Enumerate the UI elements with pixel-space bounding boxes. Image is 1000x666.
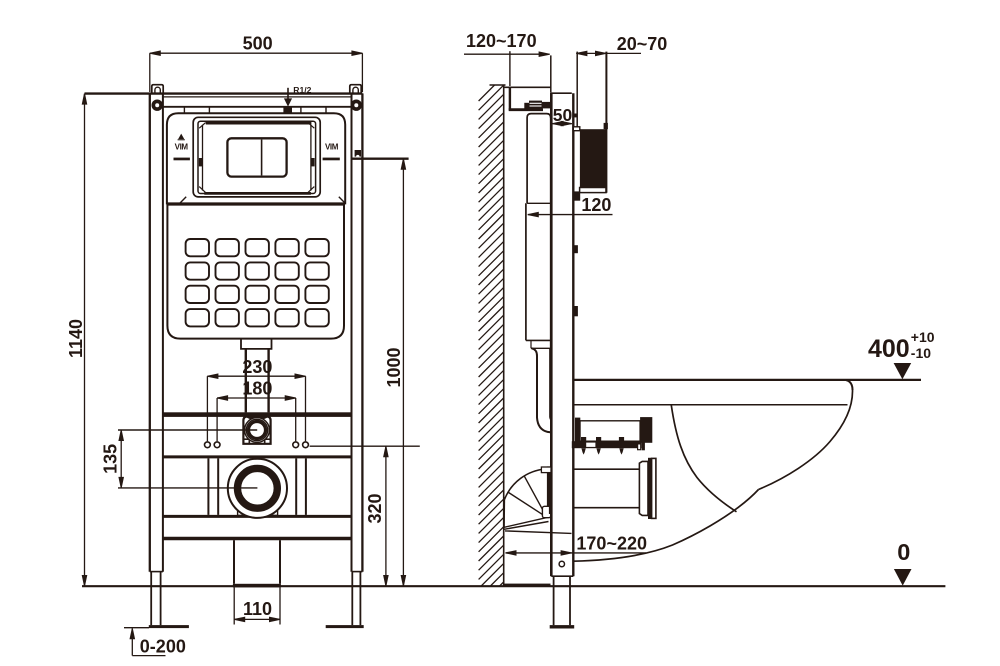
svg-text:50: 50 [553,105,573,125]
svg-text:R1/2: R1/2 [293,85,311,95]
svg-text:20~70: 20~70 [617,34,668,54]
svg-text:120~170: 120~170 [466,31,537,51]
svg-text:500: 500 [243,34,273,54]
svg-text:180: 180 [242,379,272,399]
svg-text:110: 110 [243,599,272,619]
svg-text:-10: -10 [911,345,931,361]
svg-text:1140: 1140 [66,319,86,358]
svg-text:1000: 1000 [384,347,404,387]
svg-text:VIM: VIM [325,143,339,152]
svg-text:0-200: 0-200 [140,636,186,656]
svg-text:VIM: VIM [175,143,189,152]
svg-text:400: 400 [868,335,910,363]
svg-text:120: 120 [581,195,611,215]
svg-text:230: 230 [242,357,272,377]
svg-text:135: 135 [101,444,121,474]
svg-text:170~220: 170~220 [576,534,647,554]
svg-text:+10: +10 [911,329,935,345]
svg-text:0: 0 [897,539,910,565]
svg-text:320: 320 [365,493,385,523]
